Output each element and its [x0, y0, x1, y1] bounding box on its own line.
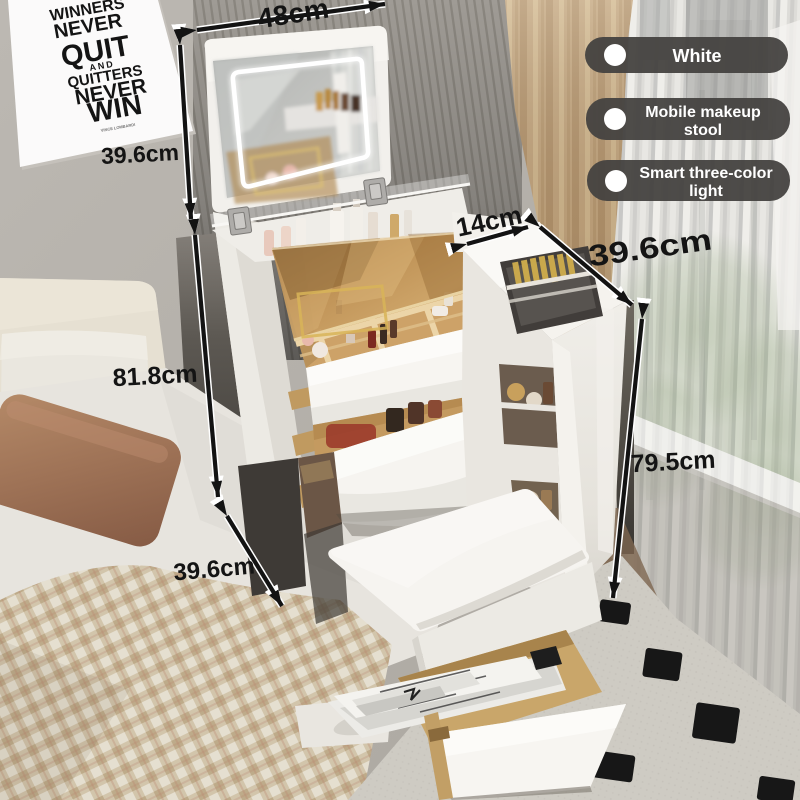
svg-text:Smart three-color: Smart three-color	[639, 165, 772, 182]
svg-text:stool: stool	[684, 122, 722, 139]
svg-text:White: White	[673, 46, 722, 66]
svg-text:39.6cm: 39.6cm	[100, 139, 179, 169]
svg-text:Mobile makeup: Mobile makeup	[645, 104, 761, 121]
svg-text:79.5cm: 79.5cm	[630, 446, 716, 478]
svg-text:81.8cm: 81.8cm	[112, 360, 198, 392]
svg-text:light: light	[689, 183, 723, 200]
